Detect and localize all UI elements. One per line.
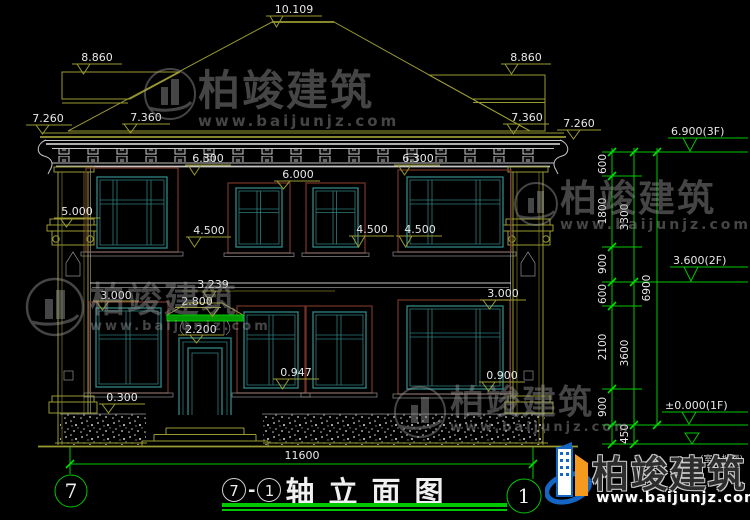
svg-text:2.800: 2.800 (181, 295, 213, 308)
canopy-band (167, 315, 243, 321)
svg-text:10.109: 10.109 (275, 3, 314, 16)
svg-text:900: 900 (597, 397, 609, 417)
window-1f-right (393, 300, 515, 398)
svg-text:6.000: 6.000 (282, 168, 314, 181)
svg-text:7.360: 7.360 (130, 111, 162, 124)
plinth (38, 414, 578, 447)
svg-text:7.360: 7.360 (511, 111, 543, 124)
svg-text:3.239: 3.239 (197, 278, 229, 291)
svg-text:6.300: 6.300 (192, 152, 224, 165)
level-3600: 3.600(2F) (670, 254, 748, 281)
svg-text:0.300: 0.300 (106, 391, 138, 404)
marker-wing-left: 8.860 (72, 51, 122, 74)
svg-text:1: 1 (518, 484, 531, 508)
marker-f2-sill-mid: 4.500 (349, 223, 394, 247)
title-axis-right: 1 (257, 478, 281, 502)
dentil-row (55, 149, 549, 162)
svg-text:8.860: 8.860 (510, 51, 542, 64)
drawing-layer: 10.109 8.860 8.860 7.260 7.360 7.360 7.2… (0, 0, 750, 520)
pilaster-ornament (521, 252, 535, 276)
marker-eave-right: 7.260 (557, 117, 601, 139)
left-eave-bracket (38, 140, 52, 174)
title-underline-thick (222, 503, 507, 507)
left-wing-roof (62, 72, 180, 99)
svg-text:3.600(2F): 3.600(2F) (673, 254, 726, 267)
svg-text:3600: 3600 (619, 340, 631, 367)
svg-text:0.900: 0.900 (486, 369, 518, 382)
window-2f-right (393, 170, 516, 256)
svg-text:7.260: 7.260 (32, 112, 64, 125)
marker-f2-head-mid: 6.000 (274, 168, 320, 189)
svg-text:11600: 11600 (285, 449, 320, 462)
window-1f-left (84, 302, 173, 397)
marker-f1-sill-mid: 0.947 (273, 366, 319, 389)
window-2f-mid-left (224, 183, 294, 257)
marker-f1-head-left: 3.000 (93, 289, 139, 310)
marker-pilaster-cap: 5.000 (54, 205, 100, 227)
axis-bubble-1: 1 (507, 479, 541, 513)
window-1f-mid-left (232, 306, 310, 397)
marker-wing-right: 8.860 (501, 51, 551, 74)
svg-text:3.000: 3.000 (100, 289, 132, 302)
level-ground: (室外地面) (685, 433, 743, 465)
svg-text:600: 600 (597, 284, 609, 304)
pilaster-ornament (66, 252, 80, 276)
svg-text:(室外地面): (室外地面) (700, 453, 743, 465)
window-2f-left (81, 168, 183, 256)
right-dimension-chain: 600 1800 900 600 2100 900 3300 3600 450 … (597, 125, 748, 465)
window-1f-mid-right (301, 306, 377, 397)
svg-text:3300: 3300 (619, 204, 631, 231)
svg-text:600: 600 (597, 154, 609, 174)
marker-plinth-top: 0.300 (99, 391, 145, 413)
svg-text:6.900(3F): 6.900(3F) (671, 125, 724, 138)
marker-canopy-eave: 2.800 (175, 295, 221, 317)
svg-text:6900: 6900 (641, 275, 653, 302)
title-underline-thin (222, 509, 507, 511)
svg-text:450: 450 (619, 424, 631, 444)
svg-text:1800: 1800 (597, 198, 609, 225)
marker-door-head: 2.200 (178, 323, 224, 343)
marker-f1-sill-right: 0.900 (479, 369, 525, 391)
axis-bubble-7: 7 (55, 475, 87, 507)
svg-text:7: 7 (65, 479, 78, 503)
marker-eave-left: 7.260 (26, 112, 72, 134)
title-dash: - (248, 480, 255, 501)
cad-elevation-drawing: 10.109 8.860 8.860 7.260 7.360 7.360 7.2… (0, 0, 750, 520)
marker-fascia-left: 7.360 (122, 111, 170, 133)
canopy-bracket (224, 321, 230, 335)
marker-ridge: 10.109 (266, 3, 322, 27)
entry-steps (142, 415, 268, 446)
svg-text:4.500: 4.500 (404, 223, 436, 236)
svg-text:±0.000(1F): ±0.000(1F) (665, 399, 728, 412)
svg-text:2100: 2100 (597, 334, 609, 361)
title-axis-left: 7 (222, 478, 246, 502)
svg-text:5.000: 5.000 (61, 205, 93, 218)
marker-f2-sill-left: 4.500 (186, 224, 231, 247)
svg-text:3.000: 3.000 (487, 287, 519, 300)
level-6900: 6.900(3F) (668, 125, 748, 151)
svg-text:0.947: 0.947 (280, 366, 312, 379)
svg-text:2.200: 2.200 (185, 323, 217, 336)
level-0000: ±0.000(1F) (662, 399, 748, 424)
svg-text:6.300: 6.300 (402, 152, 434, 165)
right-eave-bracket (554, 140, 568, 174)
svg-text:4.500: 4.500 (356, 223, 388, 236)
marker-f2-sill-right: 4.500 (396, 223, 442, 247)
svg-text:900: 900 (597, 254, 609, 274)
entry-door (179, 338, 231, 428)
svg-text:8.860: 8.860 (81, 51, 113, 64)
svg-text:7.260: 7.260 (563, 117, 595, 130)
svg-text:4.500: 4.500 (193, 224, 225, 237)
